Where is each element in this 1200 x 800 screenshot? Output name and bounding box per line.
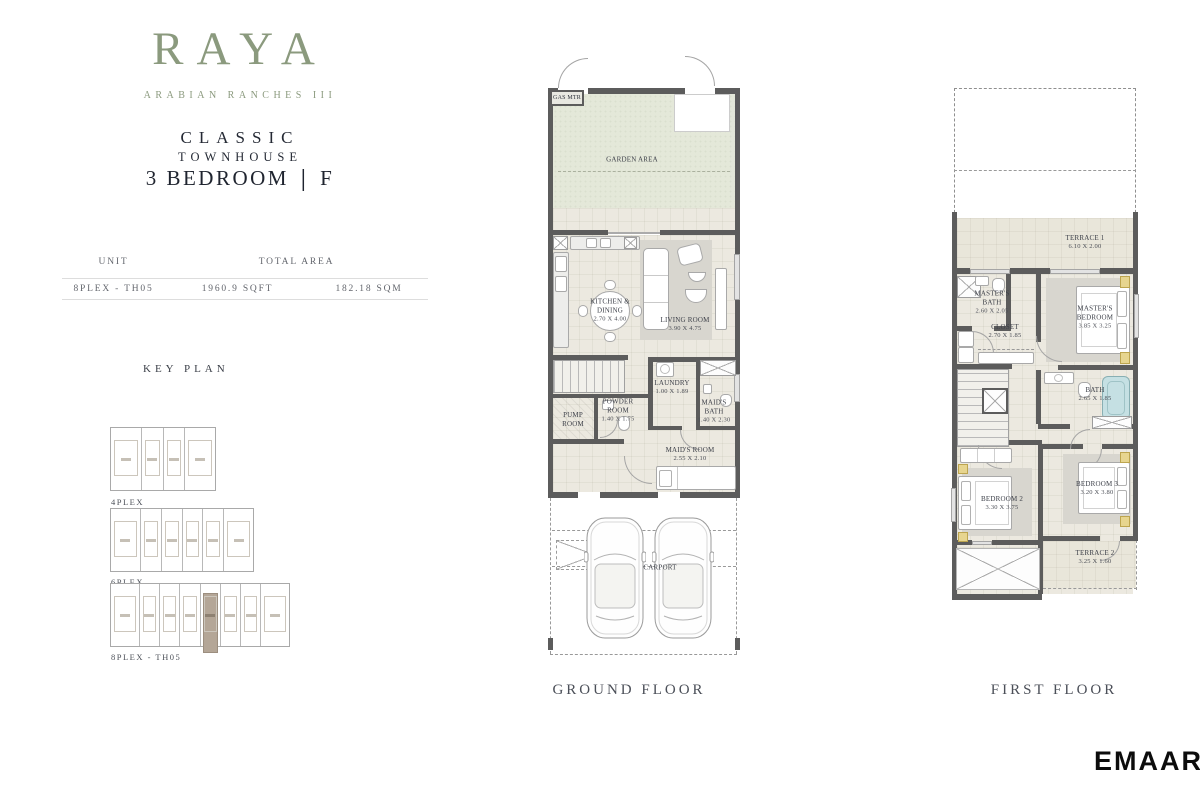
closet-shelf [958, 331, 974, 347]
oven [555, 276, 567, 292]
unit-mark [120, 539, 130, 542]
keyplan-unit [140, 584, 160, 646]
washer-drum [660, 364, 670, 374]
bench-icon [960, 448, 1012, 463]
ground-floor-plan: GAS MTR [548, 78, 740, 658]
garden-niche [674, 94, 730, 132]
pillow [1117, 323, 1127, 349]
bath-label: BATH 2.65 X 1.85 [1079, 386, 1112, 404]
keyplan-unit [261, 584, 289, 646]
unit-mark [147, 458, 157, 461]
sink-icon [703, 384, 712, 394]
keyplan-unit [203, 509, 224, 571]
raya-logo: RAYA [60, 22, 420, 76]
keyplan-unit [111, 509, 141, 571]
wall [594, 396, 598, 443]
keyplan-unit [141, 509, 162, 571]
terrace2-boundary [1136, 540, 1137, 590]
window [970, 269, 1010, 274]
wall [1038, 424, 1070, 429]
masters-bedroom-label: MASTER'S BEDROOM 3.85 X 3.25 [1077, 305, 1113, 332]
bed-icon [656, 466, 736, 490]
shower-icon [700, 360, 736, 376]
keyplan-unit [180, 584, 200, 646]
wall [952, 212, 957, 274]
pillow [1117, 467, 1127, 486]
keyplan-unit [160, 584, 180, 646]
key-plan-heading: KEY PLAN [143, 363, 229, 375]
title-separator: | [301, 164, 308, 193]
keyplan-unit [183, 509, 204, 571]
pergola [956, 548, 1040, 590]
unit-mark [144, 614, 154, 617]
unit-mark [121, 458, 131, 461]
kitchen-appliance [553, 236, 568, 250]
fridge [555, 256, 567, 272]
area-sqft-value: 1960.9 SQFT [165, 279, 310, 299]
chair-icon [604, 280, 616, 290]
wall [648, 357, 653, 430]
wall [1036, 370, 1041, 424]
nightstand-icon [1120, 452, 1130, 463]
title-bedrooms: 3 BEDROOM|F [60, 166, 420, 191]
wall [1058, 365, 1138, 370]
keyplan-unit [185, 428, 215, 490]
wall [600, 492, 658, 498]
window [1050, 269, 1100, 274]
carport-label: CARPORT [643, 563, 676, 572]
window [1134, 294, 1139, 338]
carport-boundary [550, 654, 737, 655]
unit-mark [185, 614, 195, 617]
wall [1120, 536, 1138, 541]
wall [548, 492, 578, 498]
keyplan-8plex [110, 583, 290, 647]
unit-header: UNIT [62, 252, 165, 272]
nightstand-icon [1120, 276, 1130, 288]
wall [1004, 440, 1042, 445]
title-bedroom-count: 3 BEDROOM [146, 166, 289, 190]
unit-mark [167, 539, 177, 542]
open-area-boundary [954, 88, 1136, 218]
keyplan-4plex [110, 427, 216, 491]
unit-mark [120, 614, 130, 617]
wall [548, 439, 624, 444]
basin [1054, 374, 1063, 382]
wall [1102, 444, 1138, 449]
pump-room-label: PUMP ROOM [562, 411, 584, 429]
kitchen-sink [600, 238, 611, 248]
pillow [1117, 490, 1127, 509]
wall [588, 88, 685, 94]
terrace1-floor [957, 218, 1133, 270]
wall [952, 594, 1042, 600]
closet-label: CLOSET 2.70 X 1.85 [989, 323, 1022, 341]
wall [548, 638, 553, 650]
window [734, 254, 740, 300]
unit-mark [234, 539, 244, 542]
brochure-page: RAYA ARABIAN RANCHES III CLASSIC TOWNHOU… [0, 0, 1200, 800]
window [734, 374, 740, 402]
chair-icon [632, 305, 642, 317]
pillow [1117, 291, 1127, 317]
unit-mark [187, 539, 197, 542]
terrace1-label: TERRACE 1 6.10 X 2.00 [1066, 234, 1105, 252]
linen-closet [1092, 416, 1132, 429]
kitchen-sink [586, 238, 597, 248]
wall [1010, 268, 1050, 274]
pillow [961, 505, 971, 525]
keyplan-unit [221, 584, 241, 646]
powder-room-label: POWDER ROOM 1.40 X 1.75 [602, 398, 635, 425]
keyplan-8plex-label: 8PLEX - TH05 [111, 652, 181, 662]
bedroom2-label: BEDROOM 2 3.30 X 3.75 [981, 495, 1023, 513]
keyplan-unit-highlighted [201, 584, 221, 646]
area-sqm-value: 182.18 SQM [310, 279, 428, 299]
unit-mark [208, 539, 218, 542]
nightstand-icon [1120, 352, 1130, 364]
maids-bath-label: MAID'S BATH 1.40 X 2.30 [698, 399, 731, 426]
tv-console [715, 268, 727, 330]
keyplan-unit [224, 509, 253, 571]
ground-floor-caption: GROUND FLOOR [533, 682, 725, 699]
masters-bath-label: MASTER'S BATH 2.60 X 2.05 [974, 290, 1009, 317]
first-floor-caption: FIRST FLOOR [958, 682, 1150, 699]
wall [1133, 212, 1138, 274]
wall [1036, 274, 1041, 342]
terrace2-boundary [1043, 588, 1137, 589]
nightstand-icon [958, 464, 968, 474]
kitchen-dining-label: KITCHEN & DINING 2.70 X 4.00 [590, 298, 630, 325]
garden-label: GARDEN AREA [606, 155, 658, 164]
wall [735, 638, 740, 650]
wall [652, 426, 682, 430]
car-icon [584, 514, 646, 647]
first-floor-plan: TERRACE 1 6.10 X 2.00 MASTER'S BATH 2.60… [952, 88, 1138, 608]
unit-mark [165, 614, 175, 617]
stair-void [982, 388, 1008, 414]
total-area-header: TOTAL AREA [165, 252, 428, 272]
sink-icon [975, 276, 989, 286]
car-icon [652, 514, 714, 647]
wall [1042, 536, 1100, 541]
nightstand-icon [1120, 516, 1130, 527]
door-arc-icon [558, 58, 588, 88]
wall [548, 230, 608, 235]
stairs [553, 360, 625, 393]
unit-mark [195, 458, 205, 461]
maids-room-label: MAID'S ROOM 2.55 X 2.10 [666, 446, 715, 464]
nightstand-icon [958, 532, 968, 542]
pillow [659, 470, 672, 487]
keyplan-unit [142, 428, 164, 490]
gas-meter-label: GAS MTR [553, 95, 581, 101]
window [951, 488, 956, 522]
emaar-logo: EMAAR [1094, 746, 1200, 777]
title-townhouse: TOWNHOUSE [60, 150, 420, 165]
table-rule [62, 299, 428, 300]
unit-mark [246, 614, 256, 617]
living-room-label: LIVING ROOM 3.90 X 4.75 [660, 316, 709, 334]
window [972, 541, 992, 545]
carport-boundary [736, 498, 737, 654]
chair-icon [578, 305, 588, 317]
door-arc-icon [685, 56, 715, 86]
unit-mark [146, 539, 156, 542]
laundry-label: LAUNDRY 1.00 X 1.89 [654, 379, 689, 397]
patio [553, 208, 735, 232]
kitchen-hob [624, 237, 637, 249]
closet-shelf [958, 347, 974, 363]
wall [698, 426, 740, 430]
carport-boundary [550, 498, 551, 654]
keyplan-unit [111, 428, 142, 490]
terrace2-label: TERRACE 2 3.25 X 1.60 [1076, 549, 1115, 567]
wall [680, 492, 740, 498]
keyplan-unit [162, 509, 183, 571]
title-type-letter: F [320, 166, 334, 190]
open-area-line [954, 170, 1136, 171]
keyplan-unit [164, 428, 186, 490]
unit-mark [270, 614, 280, 617]
unit-mark [225, 614, 235, 617]
unit-mark [205, 614, 215, 617]
keyplan-4plex-label: 4PLEX [111, 497, 144, 507]
chair-icon [604, 332, 616, 342]
wall [992, 540, 1042, 545]
blanket-line [677, 467, 678, 489]
closet-bench [978, 352, 1034, 364]
pillow [961, 481, 971, 501]
bedroom3-label: BEDROOM 3 3.20 X 3.80 [1076, 480, 1118, 498]
keyplan-6plex [110, 508, 254, 572]
garden-setback-line [558, 171, 730, 172]
keyplan-unit [111, 584, 140, 646]
sliding-door [608, 232, 660, 234]
gas-meter-box: GAS MTR [550, 90, 584, 106]
unit-area-table: UNIT TOTAL AREA 8PLEX - TH05 1960.9 SQFT… [62, 252, 428, 300]
unit-value: 8PLEX - TH05 [62, 279, 165, 299]
title-classic: CLASSIC [60, 128, 420, 148]
unit-mark [169, 458, 179, 461]
keyplan-unit [241, 584, 261, 646]
wall [660, 230, 740, 235]
raya-logo-subtitle: ARABIAN RANCHES III [60, 90, 420, 101]
